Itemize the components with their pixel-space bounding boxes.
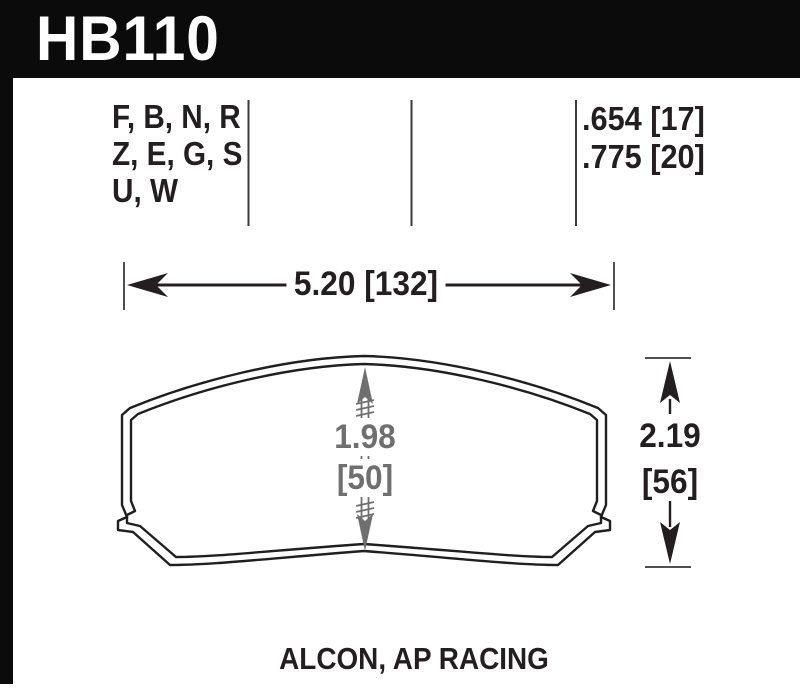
table-divider-lines [249,100,577,226]
pad-thickness-value: .775 [20] [582,138,705,176]
overall-height-label-mm: [56] [642,465,698,499]
overall-width-label: 5.20 [132] [286,264,445,304]
overall-height-label-in: 2.19 [639,419,701,453]
applications-text: ALCON, AP RACING [279,641,549,677]
friction-height-label-mm: [50] [328,459,403,497]
pad-thickness-value: .654 [17] [582,100,705,138]
compound-codes-line: Z, E, G, S [112,135,242,172]
compound-codes-block: F, B, N, R Z, E, G, S U, W [112,98,242,209]
friction-arrow-up-icon [357,367,373,404]
compound-codes-line: F, B, N, R [112,98,242,135]
friction-height-label-in: 1.98 [325,418,405,456]
pad-thickness-block: .654 [17] .775 [20] [582,100,705,176]
height-arrow-up-icon [660,361,680,403]
height-arrow-down-icon [660,522,680,564]
compound-codes-line: U, W [112,172,242,209]
brake-pad-spec-sheet: HB110 [0,0,800,691]
